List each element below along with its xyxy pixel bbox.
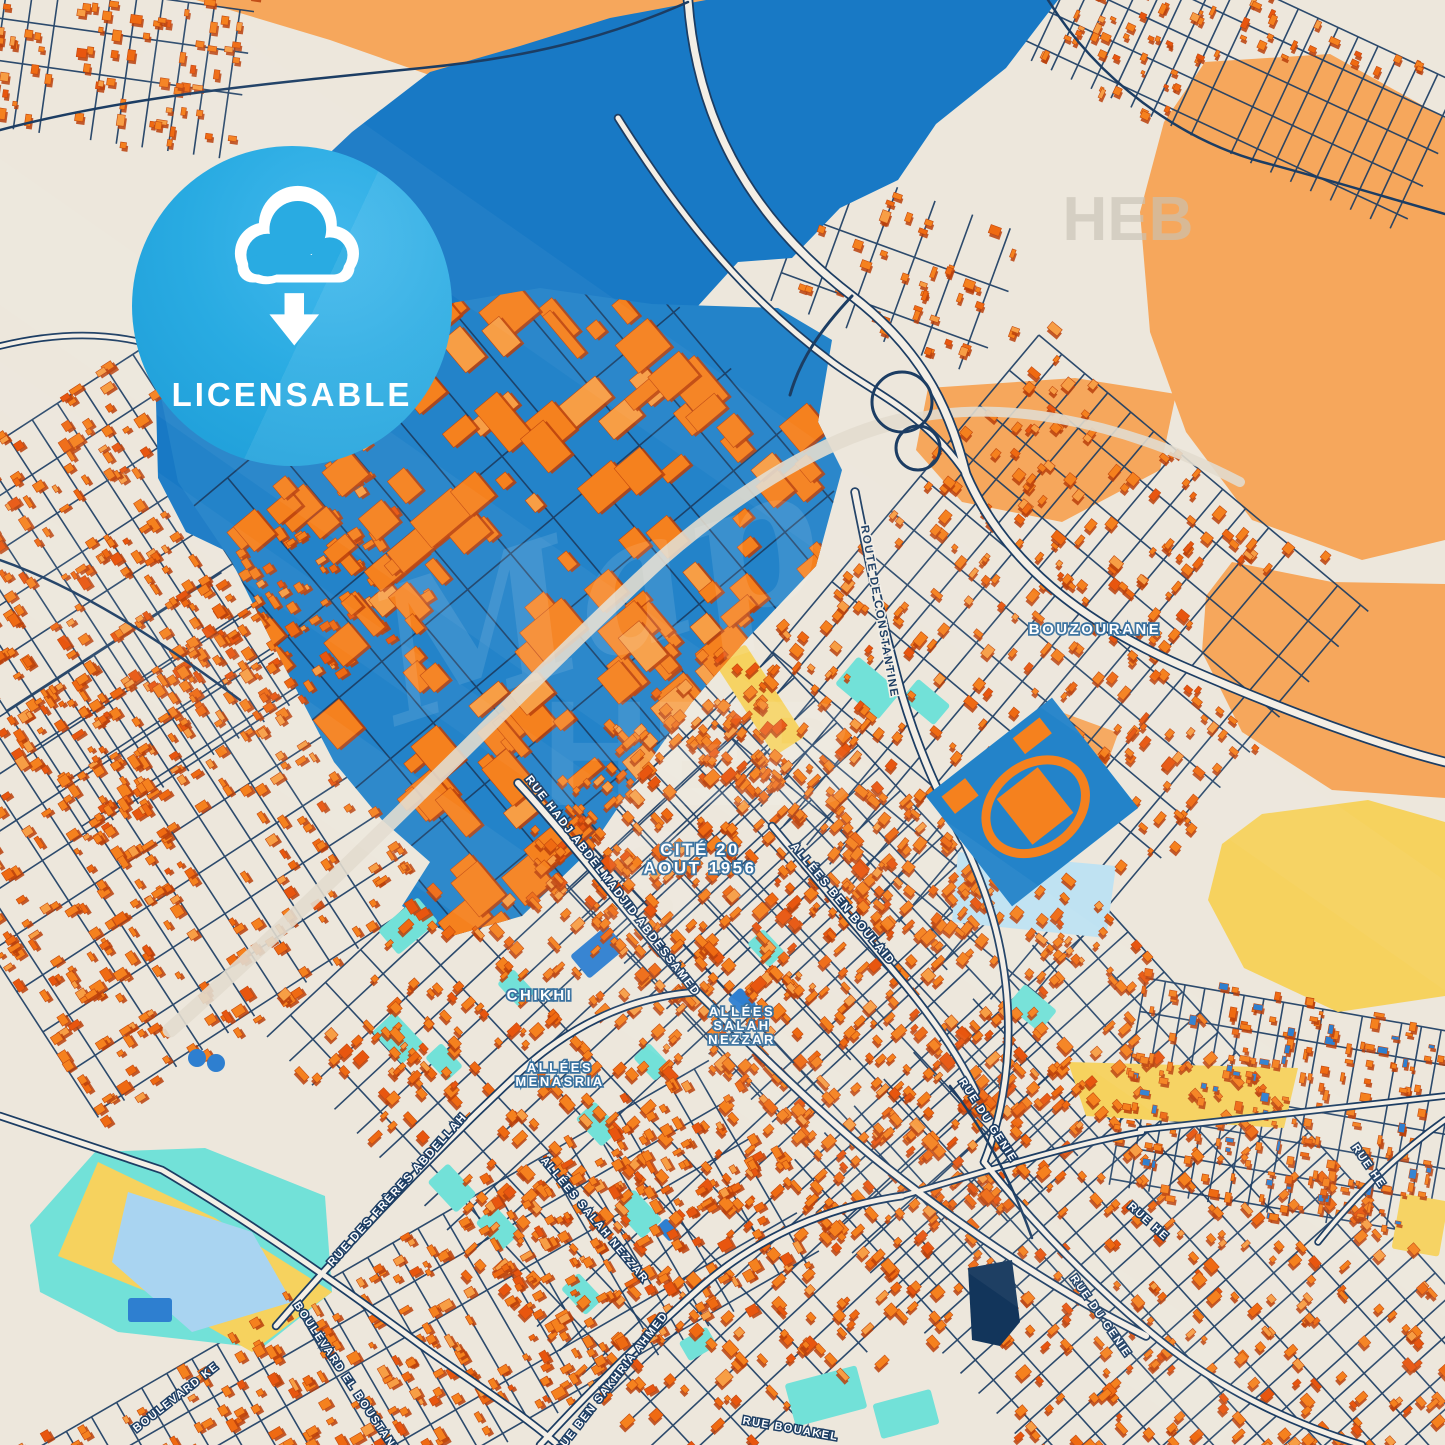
badge-label: LICENSABLE [172,376,413,414]
map-poster: RUE HADJ ABDELMADJID ABDESSAMEDALLÉES BE… [0,0,1445,1445]
download-arrow [269,293,319,345]
licensable-badge[interactable]: LICENSABLE [132,146,452,466]
water-dot [188,1049,206,1067]
water-dot [207,1054,225,1072]
watermark-text-0: HEB [1063,185,1194,254]
cloud-download-icon [195,166,390,376]
watermark-text-3: S [600,799,700,967]
cloud-shape [234,186,358,284]
place-label-allees-menasria: ALLÉESMENASRIA [515,1060,604,1089]
place-label-chikhi: CHIKHI [507,987,574,1004]
